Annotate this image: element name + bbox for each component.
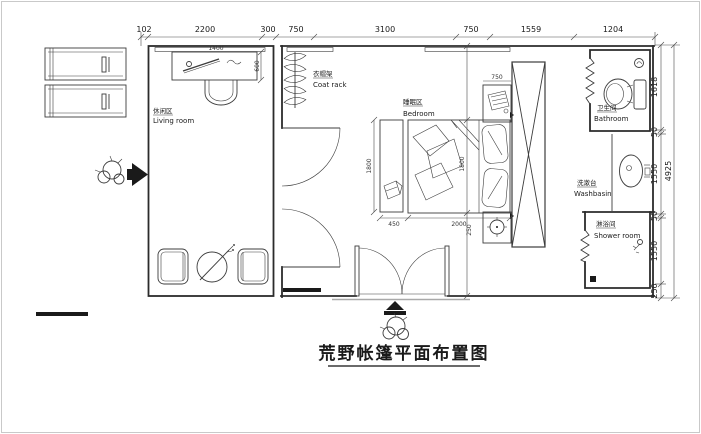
plant-icon-bottom bbox=[380, 313, 409, 340]
door-post-left bbox=[355, 246, 359, 296]
nightstand-bottom bbox=[483, 212, 514, 243]
living-room-label-zh: 休闲区 bbox=[153, 106, 173, 115]
washbasin-label-zh: 洗漱台 bbox=[577, 178, 597, 187]
washbasin-icon bbox=[620, 155, 651, 187]
toilet-paper-holder-icon bbox=[635, 59, 644, 68]
lounger-2 bbox=[45, 85, 126, 117]
nightstand-top: 750 bbox=[483, 74, 514, 122]
dim-right-1618: 1618 bbox=[650, 77, 659, 97]
dim-bed-foot-gap: 250 bbox=[466, 224, 473, 236]
living-room-label-en: Living room bbox=[153, 117, 194, 125]
door-swing-bottom bbox=[282, 209, 340, 267]
outdoor-loungers bbox=[45, 48, 126, 117]
dim-top-102: 102 bbox=[136, 25, 151, 34]
shower-folding-door bbox=[581, 230, 589, 262]
living-room: 1400 600 休闲区 Living room bbox=[149, 45, 274, 296]
dim-bed-length: 2000 bbox=[451, 221, 466, 228]
desk-chair-inner bbox=[209, 80, 233, 101]
floor-plan-page: 102 2200 300 750 3100 750 1559 1204 1618… bbox=[0, 0, 701, 434]
shower-head-icon bbox=[633, 240, 643, 254]
floor-plan-canvas: 102 2200 300 750 3100 750 1559 1204 1618… bbox=[0, 0, 701, 434]
dim-top-750a: 750 bbox=[288, 25, 303, 34]
dim-bed-head-nook: 750 bbox=[491, 74, 503, 81]
dim-right-1550a: 1550 bbox=[650, 164, 659, 184]
dim-top-750b: 750 bbox=[463, 25, 478, 34]
bag-on-bench bbox=[384, 181, 402, 199]
window-bedhead bbox=[425, 48, 510, 52]
shower-room: 淋浴间 Shower room bbox=[581, 212, 650, 288]
door-post-right bbox=[445, 246, 449, 296]
bedroom-label-en: Bedroom bbox=[403, 110, 435, 118]
dim-desk-width: 1400 bbox=[208, 45, 223, 52]
door-swing-right bbox=[402, 248, 445, 294]
pillow-top bbox=[481, 124, 508, 164]
armchair-right bbox=[238, 249, 268, 284]
shower-label-zh: 淋浴间 bbox=[596, 219, 616, 228]
coat-rack-label-zh: 衣帽架 bbox=[313, 69, 333, 78]
washbasin-area: 洗漱台 Washbasin bbox=[574, 134, 654, 212]
top-dimension-chain: 102 2200 300 750 3100 750 1559 1204 bbox=[136, 25, 658, 46]
dim-right-50a: 50 bbox=[650, 127, 659, 137]
entry-doors-bottom bbox=[332, 246, 470, 300]
entry-arrow-bottom-icon bbox=[384, 301, 406, 315]
dim-top-2200: 2200 bbox=[195, 25, 215, 34]
dim-right-1550b: 1550 bbox=[650, 241, 659, 261]
washbasin-label-en: Washbasin bbox=[574, 190, 612, 198]
dim-desk-depth: 600 bbox=[254, 60, 261, 72]
bathroom-label-zh: 卫生间 bbox=[597, 103, 617, 112]
shower-label-en: Shower room bbox=[594, 232, 641, 240]
door-swing-top bbox=[282, 128, 340, 186]
bathroom: 卫生间 Bathroom bbox=[586, 50, 650, 131]
page-title: 荒野帐篷平面布置图 bbox=[318, 343, 490, 364]
floor-drain-icon bbox=[590, 276, 596, 282]
entrance-left bbox=[95, 156, 148, 186]
coat-rack-label-en: Coat rack bbox=[313, 81, 347, 89]
bedroom-label-zh: 睡眠区 bbox=[403, 98, 423, 106]
round-table bbox=[197, 244, 235, 282]
bathroom-label-en: Bathroom bbox=[594, 115, 629, 123]
corridor-doors bbox=[282, 128, 340, 267]
wardrobe bbox=[512, 62, 545, 247]
desk: 1400 600 bbox=[172, 45, 264, 83]
entry-arrow-left-icon bbox=[127, 163, 148, 186]
bedroom: 睡眠区 Bedroom bbox=[366, 43, 545, 299]
thick-mark bbox=[36, 312, 88, 316]
dim-top-3100: 3100 bbox=[375, 25, 395, 34]
door-swing-left bbox=[359, 248, 402, 294]
duvet-sketch bbox=[413, 120, 479, 200]
entrance-bottom bbox=[380, 301, 409, 340]
armchair-left bbox=[158, 249, 188, 284]
right-dimension-chain: 1618 50 1550 50 1550 250 4925 bbox=[650, 42, 680, 301]
bathroom-folding-door bbox=[586, 58, 594, 104]
plant-icon bbox=[95, 156, 124, 184]
lounger-1 bbox=[45, 48, 126, 80]
dim-right-total: 4925 bbox=[664, 161, 673, 181]
dim-bed-width: 1800 bbox=[366, 158, 373, 173]
dim-bench-width: 450 bbox=[388, 221, 400, 228]
window-coatrack bbox=[287, 48, 333, 52]
dim-top-300: 300 bbox=[260, 25, 275, 34]
bed-dimensions: 450 2000 1800 1800 250 bbox=[366, 43, 513, 299]
coat-rack: 衣帽架 Coat rack bbox=[284, 52, 348, 108]
bed-bench bbox=[380, 120, 403, 212]
dim-top-1204: 1204 bbox=[603, 25, 623, 34]
dim-top-1559: 1559 bbox=[521, 25, 541, 34]
corridor-sill bbox=[283, 288, 321, 292]
title-block: 荒野帐篷平面布置图 bbox=[318, 343, 490, 366]
dim-bed-width-center: 1800 bbox=[459, 156, 466, 171]
pillow-bottom bbox=[481, 168, 508, 208]
living-room-label: 休闲区 Living room bbox=[153, 106, 194, 125]
living-room-walls bbox=[149, 46, 274, 296]
